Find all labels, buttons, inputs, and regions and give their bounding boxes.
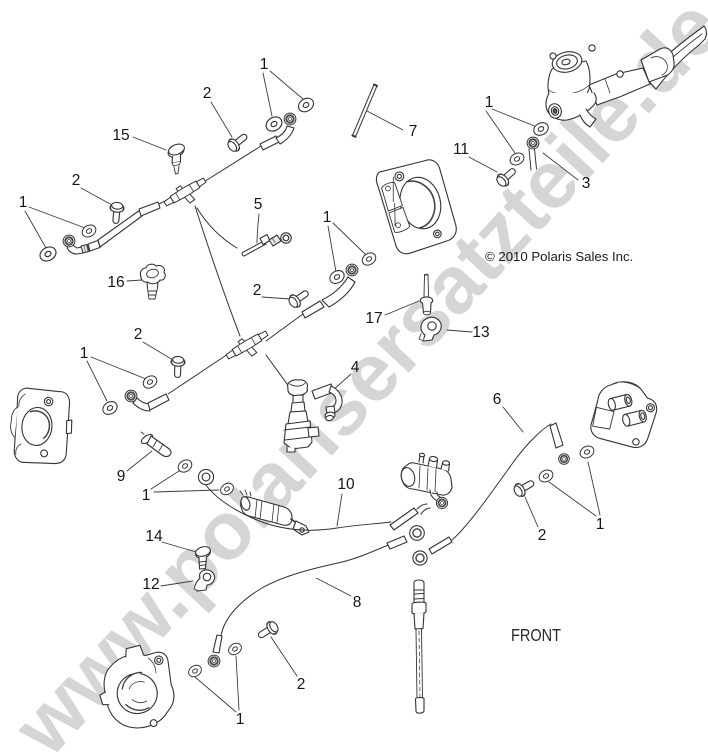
svg-text:1: 1 <box>142 487 151 504</box>
svg-text:12: 12 <box>142 576 159 593</box>
svg-text:1: 1 <box>260 56 269 73</box>
svg-text:1: 1 <box>80 345 89 362</box>
svg-text:10: 10 <box>337 476 355 493</box>
svg-text:2: 2 <box>253 282 262 299</box>
svg-text:© 2010 Polaris Sales Inc.: © 2010 Polaris Sales Inc. <box>485 249 633 264</box>
svg-text:1: 1 <box>323 209 332 226</box>
svg-text:1: 1 <box>596 516 605 533</box>
svg-text:17: 17 <box>365 310 382 327</box>
svg-text:2: 2 <box>297 676 306 693</box>
svg-text:7: 7 <box>409 123 418 140</box>
svg-text:6: 6 <box>493 391 502 408</box>
svg-text:8: 8 <box>353 594 362 611</box>
svg-text:14: 14 <box>145 528 163 545</box>
svg-text:4: 4 <box>351 359 360 376</box>
svg-text:2: 2 <box>538 527 547 544</box>
svg-text:11: 11 <box>453 141 469 158</box>
svg-text:1: 1 <box>19 194 28 211</box>
svg-text:1: 1 <box>236 711 245 728</box>
svg-text:3: 3 <box>582 175 591 192</box>
svg-text:5: 5 <box>254 196 263 213</box>
svg-text:15: 15 <box>112 127 129 144</box>
svg-text:www.polarisersatzteile.de: www.polarisersatzteile.de <box>0 0 708 754</box>
svg-text:9: 9 <box>117 468 126 485</box>
svg-text:2: 2 <box>72 172 81 189</box>
svg-text:16: 16 <box>107 274 124 291</box>
svg-text:FRONT: FRONT <box>511 625 561 645</box>
svg-text:13: 13 <box>472 324 489 341</box>
svg-text:2: 2 <box>203 85 212 102</box>
svg-text:1: 1 <box>485 94 494 111</box>
svg-text:2: 2 <box>134 326 143 343</box>
